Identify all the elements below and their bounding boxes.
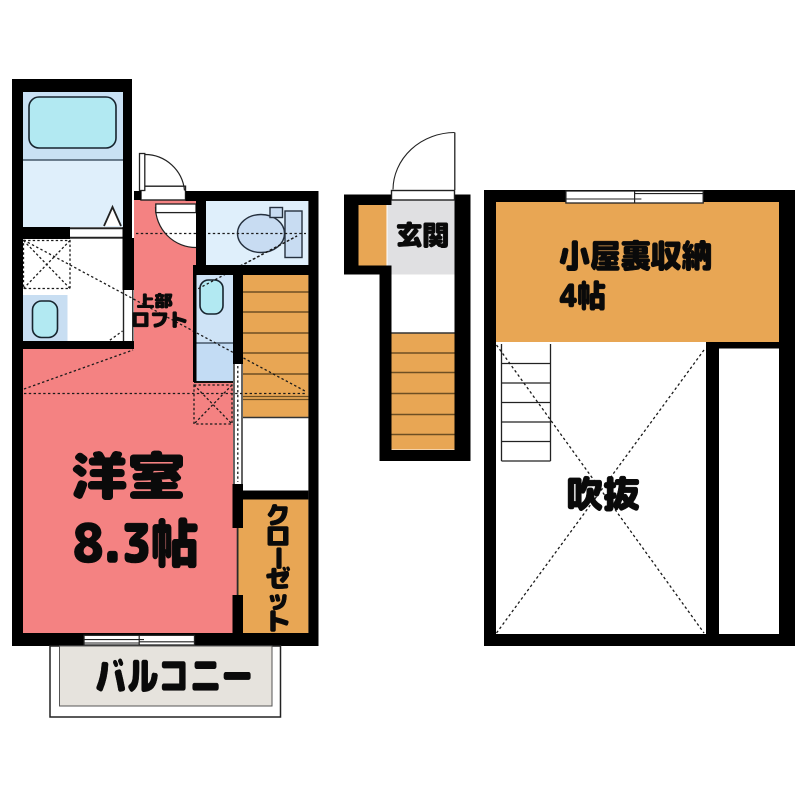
- svg-text:8.3帖: 8.3帖: [73, 505, 198, 580]
- svg-text:ロフト: ロフト: [131, 308, 188, 334]
- svg-text:バルコニー: バルコニー: [95, 649, 253, 703]
- svg-text:4帖: 4帖: [560, 274, 606, 318]
- svg-text:吹抜: 吹抜: [566, 468, 640, 521]
- svg-text:小屋裏収納: 小屋裏収納: [559, 233, 712, 279]
- svg-text:洋室: 洋室: [71, 439, 185, 512]
- svg-text:ト: ト: [265, 603, 290, 638]
- svg-text:玄関: 玄関: [396, 215, 449, 254]
